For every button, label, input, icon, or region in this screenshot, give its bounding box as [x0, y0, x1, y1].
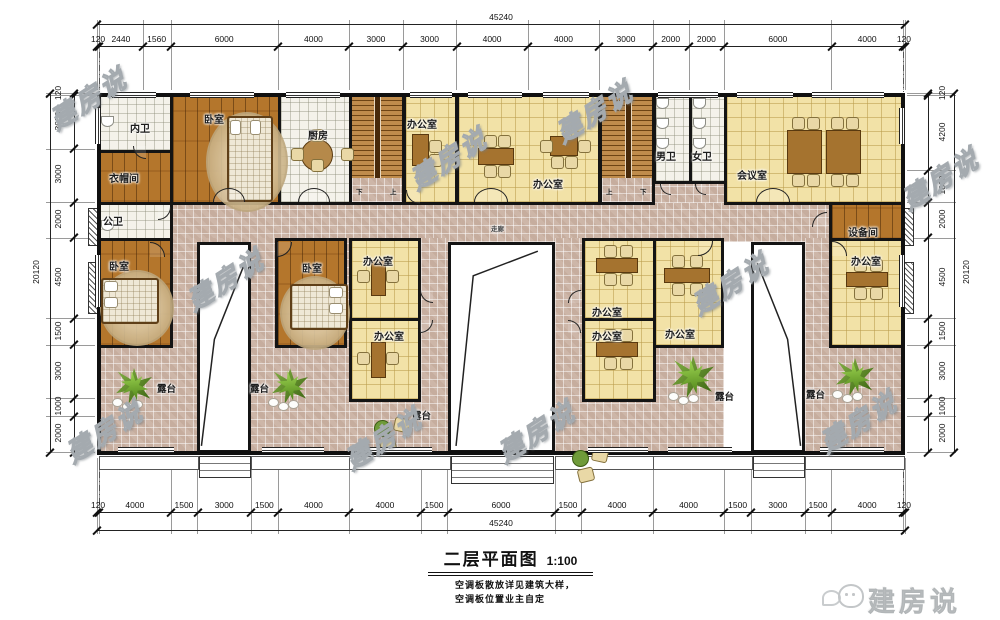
label-office-d3: 办公室: [592, 328, 622, 343]
dim-label: 4000: [293, 34, 333, 44]
chair: [291, 148, 304, 161]
chair: [484, 135, 497, 148]
window: [588, 447, 648, 453]
terrace-table: [374, 420, 391, 437]
label-meeting: 会议室: [737, 167, 767, 182]
pebble: [852, 392, 863, 401]
pillow: [250, 120, 261, 135]
dim-extension: [907, 452, 956, 453]
office-desk: [664, 268, 710, 283]
chair: [620, 273, 633, 286]
dim-extension: [456, 20, 457, 90]
drawing-title-text: 二层平面图: [444, 550, 539, 569]
window: [360, 447, 432, 453]
label-office-t1: 办公室: [407, 116, 437, 131]
label-womens-wc: 女卫: [692, 148, 712, 163]
label-bedroom-a: 卧室: [109, 258, 129, 273]
dim-label: 3000: [53, 101, 63, 141]
entrance-steps: [451, 456, 554, 484]
dim-label: 4000: [365, 500, 405, 510]
chair: [792, 174, 805, 187]
label-cloakroom: 衣帽间: [109, 170, 139, 185]
conference-table: [787, 130, 822, 174]
double-door: [213, 188, 245, 202]
dim-label: 4000: [669, 500, 709, 510]
dim-label: 20120: [961, 252, 971, 292]
plant: [836, 358, 874, 396]
conference-table: [826, 130, 861, 174]
dim-line: [97, 46, 905, 47]
chair: [690, 283, 703, 296]
label-terrace-d: 露台: [715, 389, 734, 403]
window: [190, 92, 254, 98]
chair: [854, 287, 867, 300]
dim-label: 4000: [847, 34, 887, 44]
drawing-notes: 空调板散放详见建筑大样， 空调板位置业主自定: [455, 578, 575, 606]
dim-label: 3000: [204, 500, 244, 510]
dim-extension: [907, 345, 956, 346]
dim-label: 3000: [758, 500, 798, 510]
window: [543, 92, 589, 98]
dim-extension: [171, 20, 172, 90]
pebble: [132, 400, 143, 409]
window: [468, 92, 522, 98]
dim-extension: [528, 20, 529, 90]
note-line-2: 空调板位置业主自定: [455, 592, 575, 606]
label-office-d1: 办公室: [592, 304, 622, 319]
dim-label: 4000: [115, 500, 155, 510]
drawing-title: 二层平面图1:100: [428, 545, 593, 576]
dim-label: 4000: [472, 34, 512, 44]
entrance-steps: [199, 456, 251, 478]
chair: [357, 270, 370, 283]
dim-label: 45240: [481, 518, 521, 528]
light-well-center: [448, 242, 555, 453]
eave: [653, 456, 753, 470]
dim-extension: [831, 20, 832, 90]
stair1-down-label: 下: [356, 186, 363, 196]
window: [112, 92, 156, 98]
label-office-d2: 办公室: [665, 326, 695, 341]
chair: [386, 352, 399, 365]
dim-extension: [907, 238, 956, 239]
chair: [498, 135, 511, 148]
eave: [99, 456, 199, 470]
dim-extension: [403, 20, 404, 90]
corridor-floor: [97, 202, 905, 242]
dim-label: 6000: [204, 34, 244, 44]
dim-label: 1500: [244, 500, 284, 510]
pebble: [288, 400, 299, 409]
dim-label: 2000: [53, 413, 63, 453]
label-public-bath: 公卫: [103, 213, 123, 228]
dim-extension: [905, 20, 906, 90]
dim-label: 3000: [53, 154, 63, 194]
light-well-right: [751, 242, 805, 453]
dim-extension: [907, 318, 956, 319]
label-bedroom-top: 卧室: [204, 111, 224, 126]
note-line-1: 空调板散放详见建筑大样，: [455, 578, 575, 592]
double-door: [474, 188, 508, 202]
label-office-m2: 办公室: [374, 328, 404, 343]
eave: [805, 456, 905, 470]
ac-platform: [88, 208, 99, 246]
dim-label: 2000: [937, 199, 947, 239]
toilet-fixture: [693, 118, 706, 129]
dim-label: 3000: [53, 351, 63, 391]
dim-label: 45240: [481, 12, 521, 22]
stair2-up-label: 上: [606, 186, 613, 196]
dim-label: 3000: [937, 351, 947, 391]
pebble: [688, 394, 699, 403]
toilet-fixture: [101, 116, 114, 127]
chair: [672, 283, 685, 296]
dim-label: 4500: [53, 257, 63, 297]
office-desk: [846, 272, 888, 287]
office-desk: [371, 342, 386, 378]
chair: [498, 165, 511, 178]
dim-extension: [907, 93, 956, 94]
chair: [807, 174, 820, 187]
label-mens-wc: 男卫: [656, 148, 676, 163]
dim-label: 2000: [686, 34, 726, 44]
window: [820, 447, 884, 453]
dim-label: 2440: [101, 34, 141, 44]
brand-name: 建房说: [868, 580, 961, 619]
dim-label: 4000: [847, 500, 887, 510]
mascot-icon: [838, 584, 864, 608]
dim-label: 4000: [293, 500, 333, 510]
stair1-up-label: 上: [390, 186, 397, 196]
dim-total-line: [97, 24, 905, 25]
eave: [349, 456, 451, 470]
label-office-t2: 办公室: [533, 176, 563, 191]
window: [737, 92, 793, 98]
chair: [846, 117, 859, 130]
dim-label: 2000: [937, 413, 947, 453]
dim-label: 120: [884, 500, 924, 510]
window: [658, 92, 718, 98]
office-desk: [550, 136, 578, 156]
chair: [604, 245, 617, 258]
terrace-chair: [577, 466, 596, 483]
window: [668, 447, 732, 453]
dim-label: 3000: [410, 34, 450, 44]
label-office-m1: 办公室: [363, 253, 393, 268]
chair: [565, 156, 578, 169]
pillow: [104, 281, 118, 292]
ac-platform: [903, 208, 914, 246]
dim-label: 2000: [651, 34, 691, 44]
window: [410, 92, 452, 98]
dim-extension: [907, 398, 956, 399]
dim-label: 1500: [164, 500, 204, 510]
label-office-e: 办公室: [851, 253, 881, 268]
dim-extension: [97, 458, 98, 534]
chair: [386, 270, 399, 283]
dim-total-line: [954, 93, 955, 452]
toilet-fixture: [693, 98, 706, 109]
floor-plan-canvas: 内卫 衣帽间 卧室 厨房 公卫 办公室 办公室 男卫 女卫 会议室 设备间 走廊…: [0, 0, 1000, 620]
dim-label: 6000: [758, 34, 798, 44]
chair: [357, 352, 370, 365]
dim-extension: [278, 20, 279, 90]
chair: [429, 140, 442, 153]
dim-label: 4000: [597, 500, 637, 510]
dim-label: 1500: [414, 500, 454, 510]
chair: [672, 255, 685, 268]
window: [899, 108, 905, 144]
chair: [551, 156, 564, 169]
dim-line: [97, 512, 905, 513]
dim-label: 120: [884, 34, 924, 44]
window: [812, 92, 884, 98]
label-corridor: 走廊: [491, 223, 504, 233]
dim-label: 1500: [937, 311, 947, 351]
chair: [690, 255, 703, 268]
drawing-scale: 1:100: [547, 554, 578, 568]
axis-line: [903, 52, 904, 92]
dim-label: 6000: [481, 500, 521, 510]
toilet-fixture: [656, 118, 669, 129]
chair: [604, 357, 617, 370]
axis-line: [99, 52, 100, 92]
dim-extension: [907, 170, 956, 171]
dim-extension: [97, 20, 98, 90]
window: [286, 92, 340, 98]
dim-label: 4200: [937, 112, 947, 152]
window: [262, 447, 324, 453]
office-desk: [596, 258, 638, 273]
stair2-down-label: 下: [640, 186, 647, 196]
dim-label: 20120: [31, 252, 41, 292]
light-well-left: [197, 242, 251, 453]
dim-label: 4000: [544, 34, 584, 44]
chair: [311, 159, 324, 172]
terrace-chair: [393, 416, 412, 433]
dim-label: 4500: [937, 257, 947, 297]
label-inner-bath: 内卫: [130, 120, 150, 135]
office-desk: [412, 134, 429, 166]
chair: [620, 245, 633, 258]
office-desk: [596, 342, 638, 357]
entrance-steps: [753, 456, 805, 478]
dim-label: 3000: [606, 34, 646, 44]
dim-label: 1500: [718, 500, 758, 510]
label-kitchen: 厨房: [308, 127, 328, 142]
dim-extension: [349, 20, 350, 90]
dim-label: 1500: [53, 311, 63, 351]
chair: [620, 357, 633, 370]
chair: [792, 117, 805, 130]
office-desk: [478, 148, 514, 165]
dim-extension: [905, 458, 906, 534]
dim-extension: [689, 20, 690, 90]
chair: [831, 174, 844, 187]
dim-label: 120: [937, 73, 947, 113]
window: [95, 255, 101, 307]
dim-extension: [724, 20, 725, 90]
chair: [540, 140, 553, 153]
dim-total-line: [50, 93, 51, 452]
brand-logo: 建房说: [822, 584, 992, 618]
eave: [251, 456, 351, 470]
pillow: [329, 287, 343, 298]
chair: [578, 140, 591, 153]
label-bedroom-b: 卧室: [302, 260, 322, 275]
dim-label: 1560: [137, 34, 177, 44]
pillow: [104, 297, 118, 308]
dim-extension: [907, 202, 956, 203]
chair: [341, 148, 354, 161]
dim-label: 3000: [356, 34, 396, 44]
dim-label: 2000: [53, 199, 63, 239]
dim-extension: [143, 20, 144, 90]
chair: [484, 165, 497, 178]
dim-label: 1500: [798, 500, 838, 510]
double-door: [756, 188, 790, 202]
dim-extension: [907, 416, 956, 417]
dim-extension: [653, 20, 654, 90]
label-terrace-e: 露台: [806, 387, 825, 401]
chair: [870, 287, 883, 300]
chair: [604, 273, 617, 286]
pillow: [329, 303, 343, 314]
chair: [846, 174, 859, 187]
dim-label: 1500: [548, 500, 588, 510]
terrace-table: [572, 450, 589, 467]
label-terrace-a: 露台: [157, 381, 176, 395]
window: [118, 447, 174, 453]
dim-label: 120: [78, 500, 118, 510]
chair: [429, 154, 442, 167]
label-terrace-b: 露台: [250, 381, 269, 395]
toilet-fixture: [656, 98, 669, 109]
pillow: [230, 120, 241, 135]
chair: [831, 117, 844, 130]
plant: [672, 356, 714, 398]
window: [95, 108, 101, 144]
window: [899, 255, 905, 307]
chair: [807, 117, 820, 130]
label-terrace-c: 露台: [412, 408, 431, 422]
dim-extension: [599, 20, 600, 90]
label-equipment: 设备间: [848, 224, 878, 239]
dim-total-line: [97, 530, 905, 531]
double-door: [298, 188, 330, 202]
